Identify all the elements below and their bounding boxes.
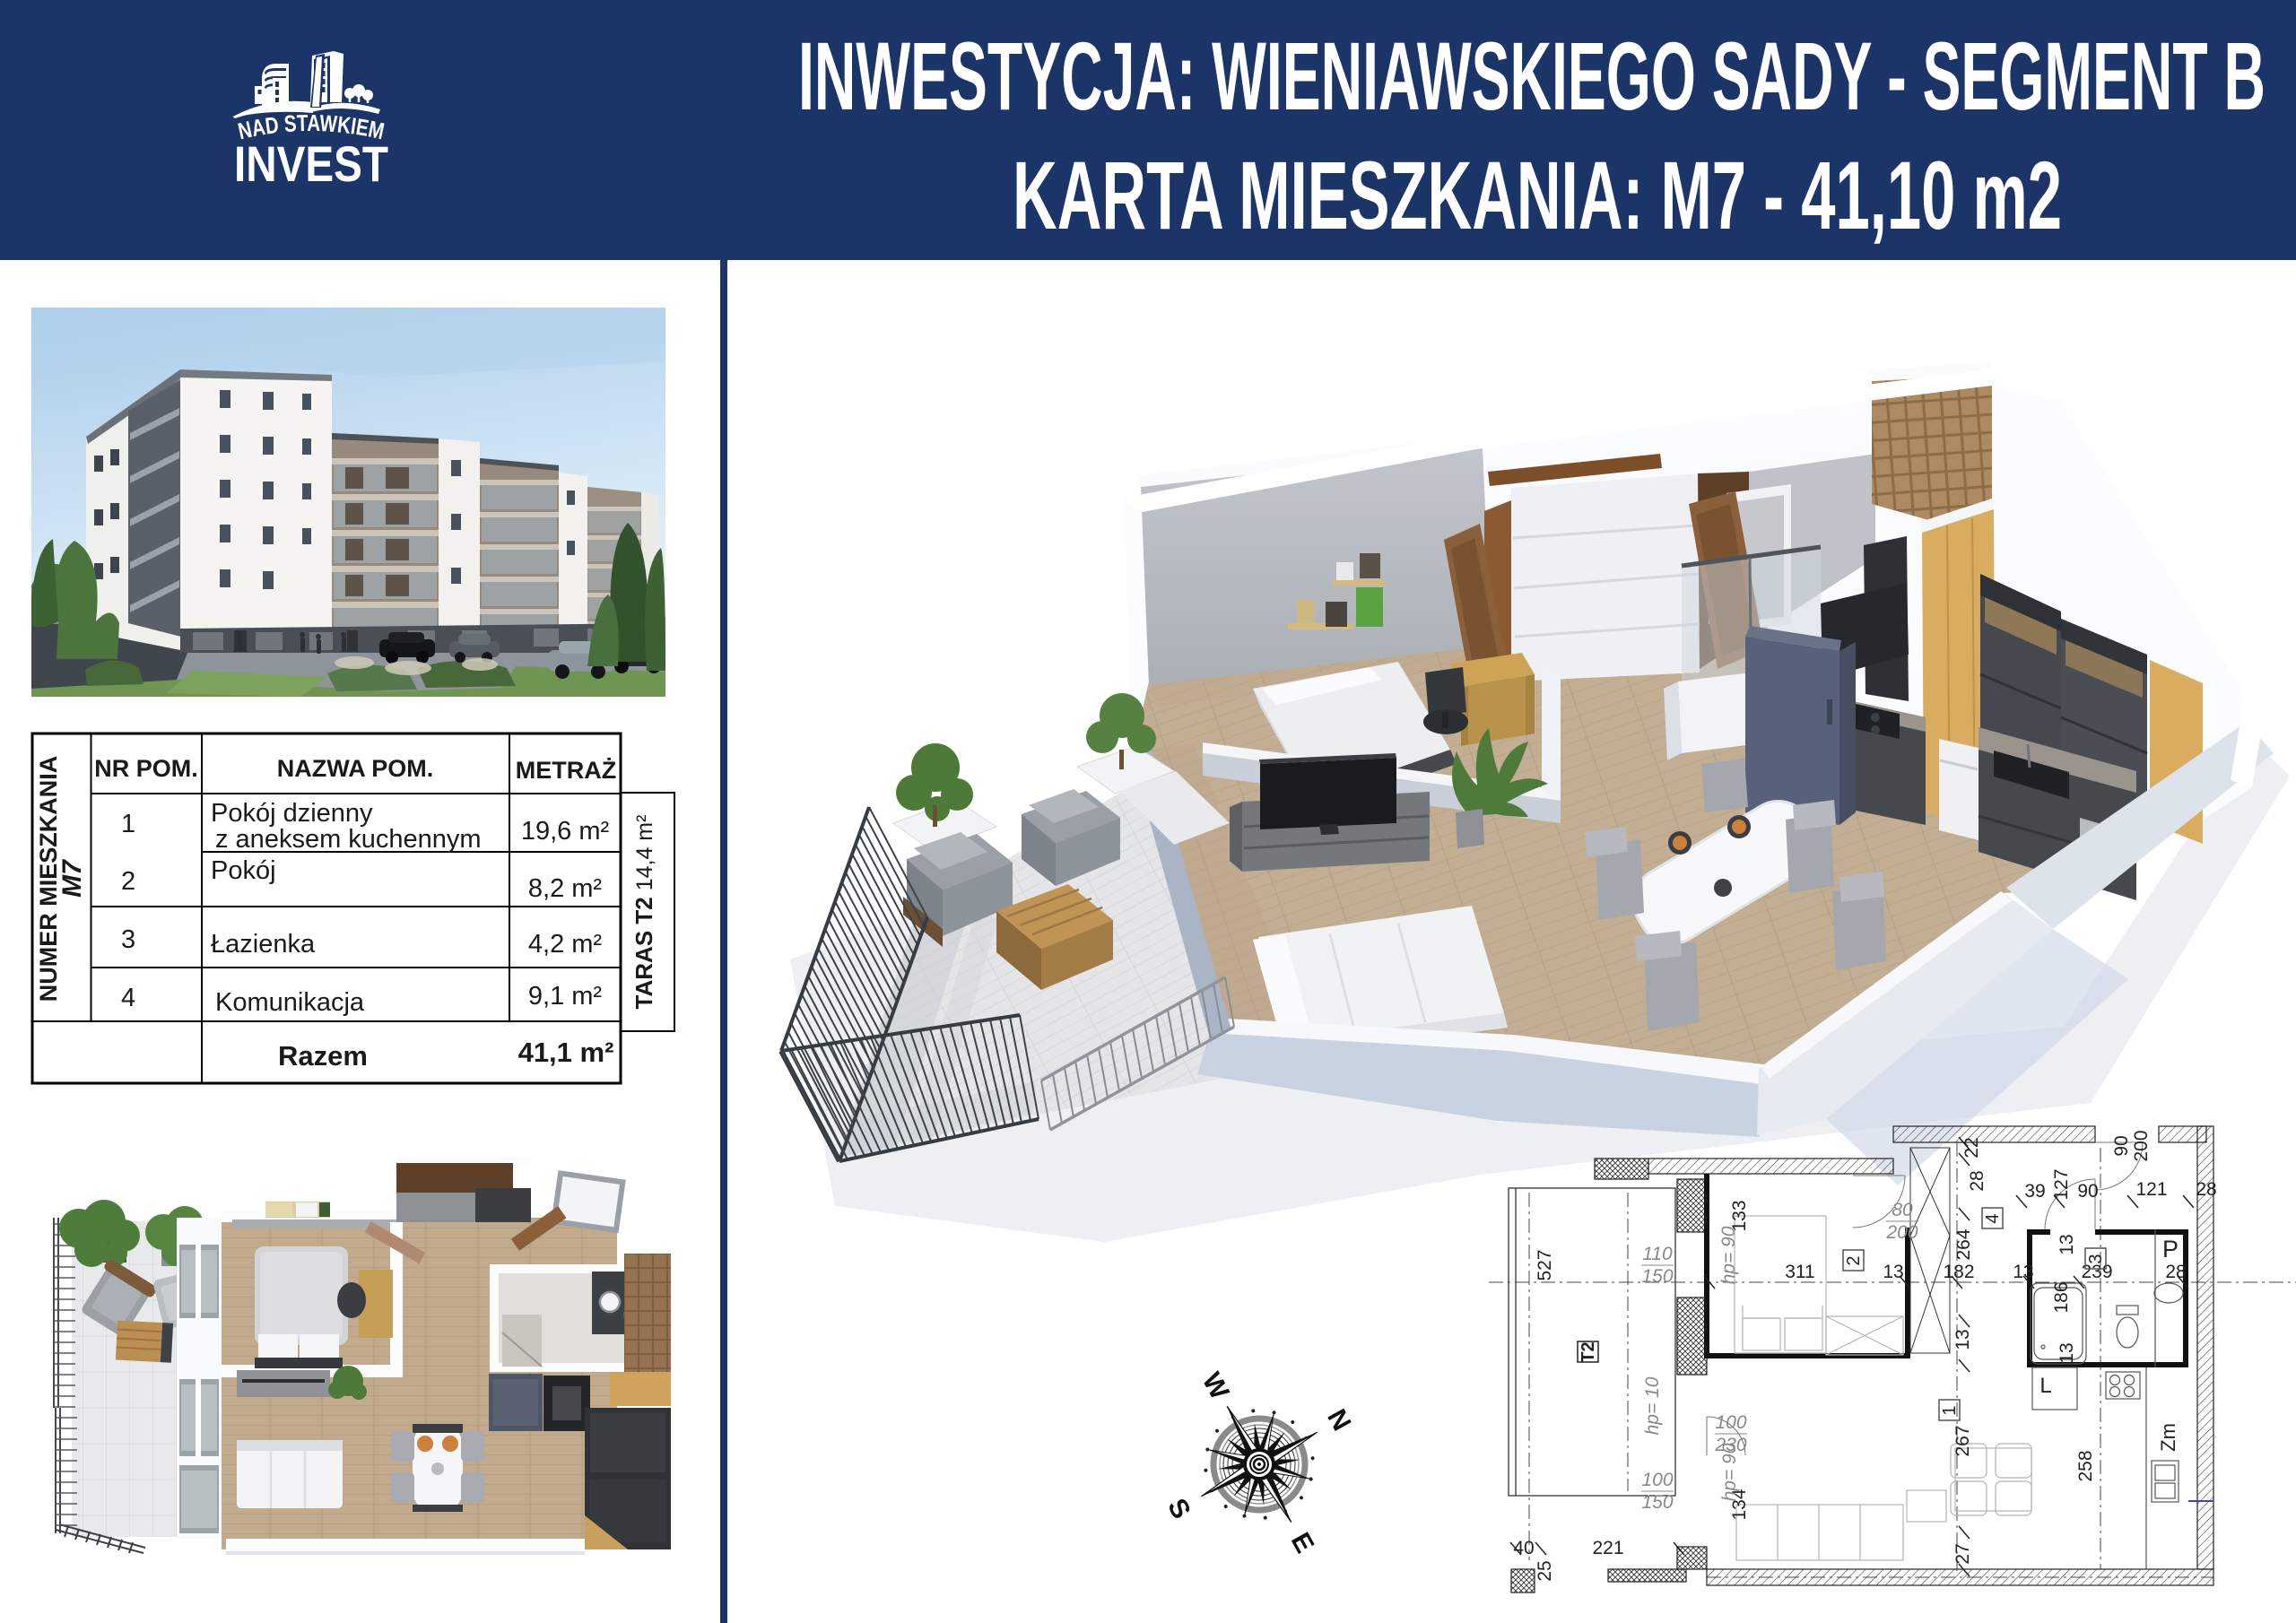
svg-text:P: P	[2162, 1236, 2179, 1263]
svg-text:KARTA MIESZKANIA: M7 - 41,10 m: KARTA MIESZKANIA: M7 - 41,10 m2	[1013, 141, 2062, 249]
svg-text:13: 13	[2057, 1234, 2077, 1254]
svg-text:Komunikacja: Komunikacja	[215, 988, 365, 1017]
svg-text:hp= 10: hp= 10	[1642, 1376, 1663, 1435]
svg-text:S: S	[1161, 1494, 1196, 1524]
svg-text:hp= 90: hp= 90	[1718, 1226, 1739, 1284]
svg-text:28: 28	[2196, 1179, 2216, 1200]
svg-text:1: 1	[1940, 1405, 1960, 1415]
svg-text:182: 182	[1943, 1262, 1974, 1282]
svg-text:90: 90	[2111, 1135, 2132, 1156]
svg-text:27: 27	[1952, 1543, 1973, 1564]
svg-text:hp= 90: hp= 90	[1719, 1443, 1740, 1501]
svg-text:311: 311	[1785, 1262, 1814, 1282]
svg-text:T2: T2	[1578, 1341, 1598, 1362]
svg-text:527: 527	[1535, 1249, 1555, 1280]
svg-text:INWESTYCJA: WIENIAWSKIEGO SADY: INWESTYCJA: WIENIAWSKIEGO SADY - SEGMENT…	[798, 22, 2266, 130]
svg-text:2: 2	[1844, 1255, 1864, 1265]
svg-text:200: 200	[1885, 1222, 1918, 1243]
svg-text:3: 3	[121, 925, 135, 954]
svg-text:INVEST: INVEST	[234, 135, 388, 192]
svg-text:Razem: Razem	[278, 1040, 368, 1072]
svg-text:L: L	[2039, 1374, 2051, 1398]
svg-text:28: 28	[1967, 1170, 1987, 1191]
svg-text:Łazienka: Łazienka	[211, 930, 316, 959]
svg-text:9,1 m²: 9,1 m²	[528, 982, 603, 1011]
svg-text:NAZWA POM.: NAZWA POM.	[277, 755, 434, 782]
svg-text:13: 13	[1952, 1329, 1973, 1350]
svg-text:150: 150	[1641, 1492, 1673, 1513]
svg-text:100: 100	[1641, 1470, 1673, 1490]
svg-text:4: 4	[121, 984, 135, 1012]
svg-text:Pokój: Pokój	[211, 856, 276, 885]
svg-text:267: 267	[1952, 1425, 1973, 1456]
svg-text:13: 13	[2013, 1262, 2033, 1282]
svg-text:258: 258	[2075, 1450, 2096, 1481]
svg-text:4,2 m²: 4,2 m²	[528, 930, 603, 959]
svg-text:39: 39	[2024, 1181, 2045, 1202]
svg-text:221: 221	[1592, 1538, 1623, 1558]
svg-text:40: 40	[1513, 1538, 1534, 1558]
svg-text:22: 22	[1961, 1137, 1982, 1158]
svg-text:41,1 m²: 41,1 m²	[518, 1037, 614, 1068]
svg-text:186: 186	[2051, 1281, 2072, 1313]
svg-text:8,2 m²: 8,2 m²	[528, 874, 603, 903]
svg-text:2: 2	[121, 867, 135, 896]
svg-text:NR POM.: NR POM.	[94, 755, 198, 782]
svg-text:M7: M7	[57, 859, 87, 898]
svg-text:19,6 m²: 19,6 m²	[521, 817, 610, 846]
svg-text:150: 150	[1641, 1266, 1673, 1287]
svg-text:1: 1	[121, 810, 135, 838]
svg-text:25: 25	[1535, 1560, 1555, 1581]
svg-text:110: 110	[1642, 1244, 1673, 1264]
svg-text:4: 4	[1983, 1213, 2003, 1223]
svg-text:TARAS T2 14,4 m²: TARAS T2 14,4 m²	[631, 815, 657, 1010]
svg-text:z aneksem kuchennym: z aneksem kuchennym	[215, 825, 482, 854]
svg-text:264: 264	[1953, 1228, 1974, 1260]
svg-text:3: 3	[2086, 1254, 2106, 1263]
svg-text:80: 80	[1892, 1200, 1913, 1220]
svg-text:121: 121	[2135, 1179, 2167, 1200]
svg-text:N: N	[1321, 1404, 1356, 1436]
svg-text:28: 28	[2165, 1262, 2186, 1282]
svg-text:200: 200	[2131, 1130, 2152, 1161]
svg-text:METRAŻ: METRAŻ	[516, 757, 616, 784]
svg-text:100: 100	[1715, 1412, 1746, 1433]
svg-text:Pokój dzienny: Pokój dzienny	[211, 799, 373, 828]
svg-text:13: 13	[1883, 1262, 1903, 1282]
svg-text:W: W	[1196, 1367, 1235, 1404]
svg-text:90: 90	[2077, 1181, 2098, 1202]
svg-text:13: 13	[2057, 1342, 2077, 1363]
svg-text:Zm: Zm	[2157, 1423, 2179, 1452]
svg-text:E: E	[1285, 1528, 1320, 1558]
